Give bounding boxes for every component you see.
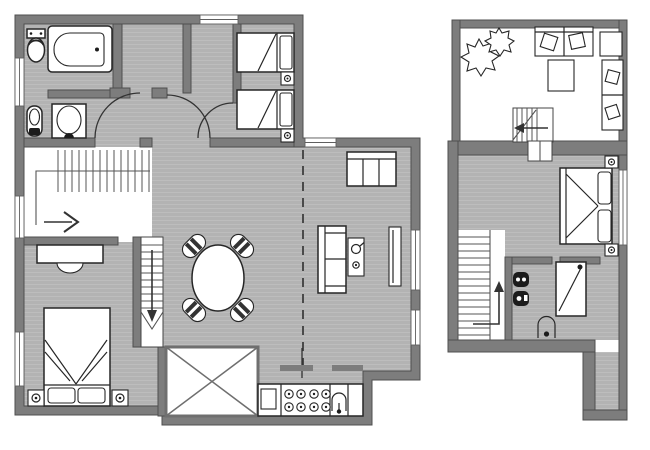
main-floor-plan — [15, 15, 420, 425]
round-table — [192, 245, 244, 311]
radiator — [389, 227, 401, 286]
double-bed — [44, 308, 110, 406]
void-skylight — [166, 347, 258, 416]
nightstand — [281, 72, 294, 85]
sofa — [347, 152, 396, 186]
washbasin — [52, 104, 86, 138]
kitchen-counter — [258, 384, 363, 416]
outdoor-sofa — [535, 27, 593, 56]
single-bed-1 — [237, 33, 294, 72]
nightstand — [112, 390, 128, 406]
side-table — [348, 238, 364, 276]
lounge-chairs — [602, 60, 623, 130]
shower — [556, 262, 586, 316]
bidet — [27, 106, 42, 136]
double-bed — [560, 168, 612, 244]
floorplan-image — [0, 0, 650, 450]
toilet — [513, 272, 529, 287]
corner-table — [600, 32, 622, 56]
floorplan-page — [0, 0, 650, 450]
nightstand — [281, 129, 294, 142]
staircase-down — [141, 237, 163, 347]
loveseat — [318, 226, 346, 293]
upper-floor-plan — [448, 20, 627, 420]
nightstand — [605, 244, 618, 256]
bathtub — [48, 26, 112, 72]
bidet — [513, 291, 529, 306]
stair-hall-floor — [24, 147, 152, 242]
nightstand — [28, 390, 44, 406]
single-bed-2 — [237, 90, 294, 129]
upper-bedroom-furniture — [560, 156, 618, 256]
toilet — [27, 29, 45, 62]
coffee-table — [548, 60, 574, 91]
nightstand — [605, 156, 618, 168]
upper-window — [619, 170, 627, 245]
corridor-floor — [595, 352, 619, 410]
